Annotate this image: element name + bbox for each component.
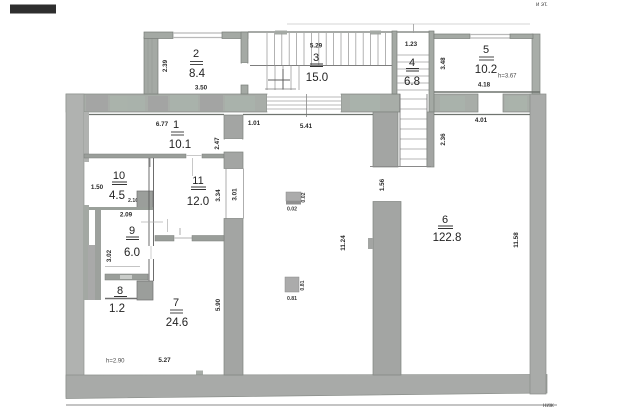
svg-text:4.18: 4.18 <box>478 82 491 89</box>
svg-text:5.90: 5.90 <box>215 298 222 311</box>
svg-text:6.0: 6.0 <box>124 247 140 259</box>
svg-text:7: 7 <box>173 297 179 309</box>
svg-text:9: 9 <box>129 225 135 237</box>
svg-text:4.01: 4.01 <box>475 117 488 124</box>
svg-text:10.2: 10.2 <box>475 64 497 76</box>
svg-text:1.01: 1.01 <box>248 120 261 127</box>
svg-text:122.8: 122.8 <box>433 232 462 244</box>
svg-text:8: 8 <box>117 285 123 297</box>
svg-text:2.47: 2.47 <box>214 137 221 150</box>
svg-text:15.0: 15.0 <box>306 72 328 84</box>
svg-text:5.29: 5.29 <box>310 43 323 50</box>
svg-text:11.58: 11.58 <box>513 232 520 248</box>
svg-text:6: 6 <box>442 214 448 226</box>
svg-text:2.36: 2.36 <box>440 133 447 146</box>
svg-text:11.24: 11.24 <box>340 235 347 251</box>
svg-text:10.1: 10.1 <box>169 139 191 151</box>
svg-text:h=3.67: h=3.67 <box>498 74 517 80</box>
svg-text:5.41: 5.41 <box>300 123 313 130</box>
svg-text:10: 10 <box>113 170 125 182</box>
svg-text:3.02: 3.02 <box>106 249 113 262</box>
svg-text:24.6: 24.6 <box>166 317 188 329</box>
svg-text:2.39: 2.39 <box>162 59 169 72</box>
svg-text:и эт.: и эт. <box>536 2 548 8</box>
svg-text:1.56: 1.56 <box>379 178 386 191</box>
svg-text:2: 2 <box>193 48 199 60</box>
svg-text:1.23: 1.23 <box>405 41 418 48</box>
svg-text:4: 4 <box>409 57 415 69</box>
svg-text:0.81: 0.81 <box>287 296 297 302</box>
svg-text:0.02: 0.02 <box>301 192 307 202</box>
svg-text:3: 3 <box>313 52 319 64</box>
svg-text:4.5: 4.5 <box>109 190 125 202</box>
svg-text:3.34: 3.34 <box>215 189 222 202</box>
svg-text:0.81: 0.81 <box>300 280 306 290</box>
svg-text:1.2: 1.2 <box>109 303 125 315</box>
svg-text:1: 1 <box>173 119 179 131</box>
svg-text:6.77: 6.77 <box>156 121 169 128</box>
svg-text:3.01: 3.01 <box>232 188 239 201</box>
svg-text:6.8: 6.8 <box>404 76 420 88</box>
svg-text:5: 5 <box>483 44 489 56</box>
svg-text:12.0: 12.0 <box>187 196 209 208</box>
svg-text:8.4: 8.4 <box>189 68 206 80</box>
svg-text:ниж: ниж <box>543 403 554 409</box>
svg-text:1.50: 1.50 <box>91 184 104 191</box>
svg-text:0.02: 0.02 <box>287 207 297 213</box>
svg-text:2.09: 2.09 <box>120 212 133 219</box>
svg-text:11: 11 <box>192 175 203 187</box>
svg-text:3.50: 3.50 <box>195 85 208 92</box>
svg-text:3.48: 3.48 <box>440 57 447 70</box>
svg-text:h=2.90: h=2.90 <box>106 359 125 365</box>
svg-text:5.27: 5.27 <box>158 357 171 364</box>
